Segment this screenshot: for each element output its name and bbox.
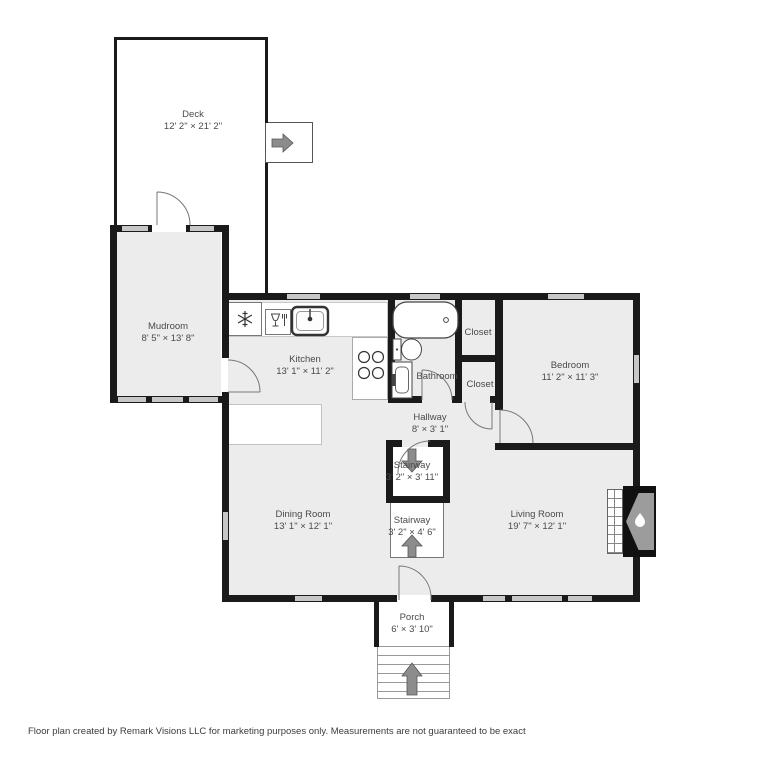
room-name: Closet <box>465 327 492 339</box>
room-name: Hallway <box>412 412 448 424</box>
front-door-arc <box>399 566 431 600</box>
room-dims: 6' × 3' 10" <box>391 624 433 636</box>
sink-icon <box>292 307 328 335</box>
room-label-dining-room: Dining Room 13' 1" × 12' 1" <box>274 509 332 533</box>
room-dims: 11' 2" × 11' 3" <box>542 372 599 384</box>
door-arcs <box>157 192 533 600</box>
room-dims: 8' × 3' 1" <box>412 424 448 436</box>
disclaimer-text: Floor plan created by Remark Visions LLC… <box>28 726 526 737</box>
fixtures-layer <box>0 0 768 768</box>
room-dims: 13' 1" × 12' 1" <box>274 521 332 533</box>
room-label-hallway: Hallway 8' × 3' 1" <box>412 412 448 436</box>
room-dims: 3' 2" × 4' 6" <box>388 527 436 539</box>
room-name: Closet <box>467 379 494 391</box>
room-label-closet-lower: Closet <box>467 379 494 391</box>
room-name: Mudroom <box>142 321 195 333</box>
room-dims: 13' 1" × 11' 2" <box>276 366 333 378</box>
room-name: Dining Room <box>274 509 332 521</box>
bedroom-door-arc <box>500 410 533 443</box>
room-label-living-room: Living Room 19' 7" × 12' 1" <box>508 509 566 533</box>
room-label-bedroom: Bedroom 11' 2" × 11' 3" <box>542 360 599 384</box>
room-label-bathroom: Bathroom <box>416 371 457 383</box>
room-label-mudroom: Mudroom 8' 5" × 13' 8" <box>142 321 195 345</box>
vanity-sink-icon <box>392 362 412 398</box>
room-dims: 8' 5" × 13' 8" <box>142 333 195 345</box>
arrow-right-icon <box>272 134 293 152</box>
four-burner-icon <box>359 352 384 379</box>
room-name: Living Room <box>508 509 566 521</box>
deck-door-arc <box>157 192 190 225</box>
kitchen-mudroom-door-arc <box>228 360 260 392</box>
snowflake-icon <box>238 311 252 327</box>
room-name: Bathroom <box>416 371 457 383</box>
room-name: Bedroom <box>542 360 599 372</box>
room-name: Kitchen <box>276 354 333 366</box>
room-dims: 12' 2" × 21' 2" <box>164 121 222 133</box>
flame-icon <box>635 513 645 527</box>
room-name: Deck <box>164 109 222 121</box>
glass-and-fork-icon <box>272 314 287 326</box>
arrow-up-icon <box>402 663 422 695</box>
floor-plan-canvas: Deck 12' 2" × 21' 2" Mudroom 8' 5" × 13'… <box>0 0 768 768</box>
room-dims: 19' 7" × 12' 1" <box>508 521 566 533</box>
room-name: Stairway <box>386 460 438 472</box>
bathtub-icon <box>393 302 458 338</box>
room-name: Stairway <box>388 515 436 527</box>
room-name: Porch <box>391 612 433 624</box>
room-label-kitchen: Kitchen 13' 1" × 11' 2" <box>276 354 333 378</box>
room-dims: 3' 2" × 3' 11" <box>386 472 438 484</box>
room-label-closet-upper: Closet <box>465 327 492 339</box>
room-label-stairway-upper: Stairway 3' 2" × 3' 11" <box>386 460 438 484</box>
room-label-deck: Deck 12' 2" × 21' 2" <box>164 109 222 133</box>
room-label-porch: Porch 6' × 3' 10" <box>391 612 433 636</box>
stair-arrows <box>272 134 422 695</box>
closet-door-arc <box>465 402 492 429</box>
room-label-stairway-lower: Stairway 3' 2" × 4' 6" <box>388 515 436 539</box>
toilet-icon <box>393 339 422 360</box>
